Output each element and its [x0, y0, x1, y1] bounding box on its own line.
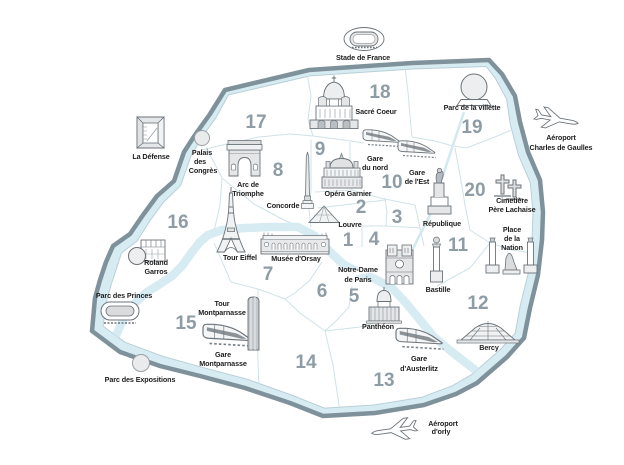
svg-text:6: 6: [317, 281, 328, 302]
svg-text:17: 17: [245, 112, 266, 133]
svg-text:Congrès: Congrès: [189, 166, 218, 175]
svg-text:16: 16: [167, 212, 188, 233]
svg-text:Concorde: Concorde: [267, 201, 300, 210]
svg-text:La Défense: La Défense: [132, 152, 169, 161]
svg-text:Sacré Coeur: Sacré Coeur: [355, 107, 397, 116]
svg-text:Parc des Princes: Parc des Princes: [96, 291, 152, 300]
svg-text:7: 7: [263, 264, 274, 285]
svg-text:Aéroport: Aéroport: [546, 133, 576, 142]
svg-text:Père Lachaise: Père Lachaise: [488, 205, 535, 214]
svg-text:Garros: Garros: [145, 267, 168, 276]
svg-text:Arc de: Arc de: [237, 180, 259, 189]
svg-text:d'Austerlitz: d'Austerlitz: [400, 364, 438, 373]
svg-text:3: 3: [392, 207, 403, 228]
svg-text:d'orly: d'orly: [432, 427, 451, 436]
svg-text:Gare: Gare: [411, 354, 427, 363]
svg-text:Bercy: Bercy: [479, 343, 499, 352]
svg-text:des: des: [194, 157, 206, 166]
svg-text:Tour: Tour: [214, 299, 229, 308]
svg-text:2: 2: [356, 197, 367, 218]
svg-text:Charles de Gaulles: Charles de Gaulles: [530, 143, 593, 152]
svg-text:19: 19: [461, 117, 482, 138]
svg-text:Bastille: Bastille: [426, 285, 451, 294]
svg-text:République: République: [423, 219, 461, 228]
svg-text:5: 5: [349, 286, 360, 307]
svg-text:Stade de France: Stade de France: [336, 53, 390, 62]
svg-text:11: 11: [448, 235, 469, 256]
svg-text:13: 13: [373, 370, 394, 391]
svg-text:12: 12: [467, 293, 488, 314]
svg-text:14: 14: [295, 352, 317, 373]
svg-text:Musée d'Orsay: Musée d'Orsay: [271, 254, 321, 263]
svg-text:Place: Place: [503, 225, 521, 234]
svg-text:de l'Est: de l'Est: [405, 177, 430, 186]
svg-text:de Paris: de Paris: [344, 275, 371, 284]
svg-text:Cimetière: Cimetière: [496, 196, 528, 205]
svg-text:Tour Eiffel: Tour Eiffel: [223, 253, 257, 262]
svg-text:8: 8: [273, 160, 284, 181]
svg-text:Gare: Gare: [367, 154, 383, 163]
svg-text:Notre-Dame: Notre-Dame: [338, 265, 378, 274]
svg-text:Gare: Gare: [409, 168, 425, 177]
svg-text:Louvre: Louvre: [338, 220, 361, 229]
svg-text:Nation: Nation: [501, 243, 523, 252]
svg-text:Opéra Garnier: Opéra Garnier: [324, 189, 371, 198]
svg-text:10: 10: [381, 172, 402, 193]
svg-text:de la: de la: [504, 234, 521, 243]
svg-text:18: 18: [369, 82, 390, 103]
svg-text:15: 15: [175, 313, 197, 334]
svg-text:Triomphe: Triomphe: [232, 189, 264, 198]
svg-text:Parc des Expositions: Parc des Expositions: [105, 375, 176, 384]
svg-text:Montparnasse: Montparnasse: [198, 308, 246, 317]
svg-text:Roland: Roland: [144, 258, 168, 267]
svg-text:1: 1: [343, 230, 354, 251]
svg-text:Parc de la villette: Parc de la villette: [444, 103, 501, 112]
svg-text:Panthéon: Panthéon: [362, 322, 394, 331]
svg-text:4: 4: [369, 229, 380, 250]
svg-text:du nord: du nord: [362, 163, 388, 172]
svg-text:20: 20: [464, 180, 485, 201]
svg-text:Palais: Palais: [192, 148, 212, 157]
svg-text:Montparnasse: Montparnasse: [199, 359, 247, 368]
svg-text:9: 9: [315, 139, 326, 160]
svg-text:Gare: Gare: [215, 350, 231, 359]
